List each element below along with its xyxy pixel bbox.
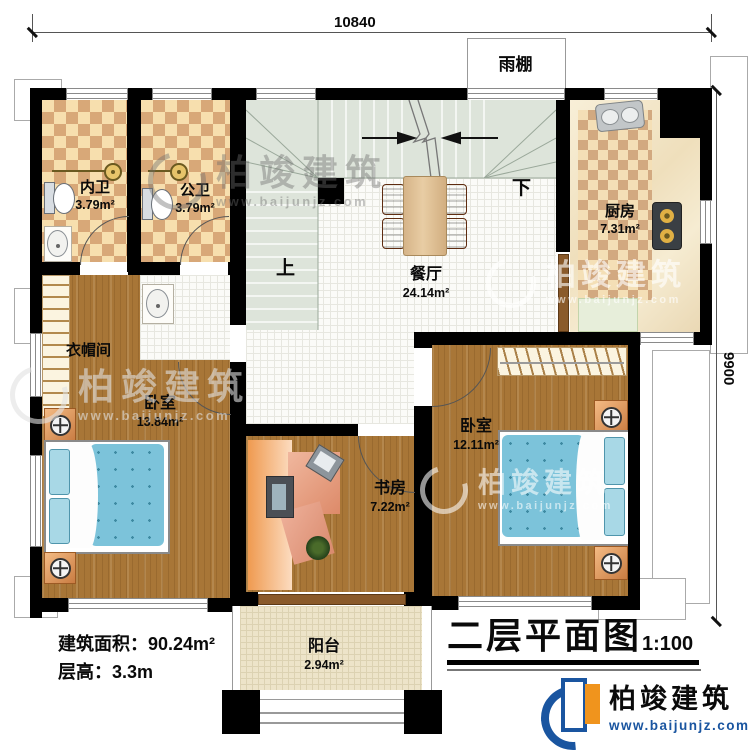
brand-building-icon [561,678,587,732]
window [256,88,316,100]
brand-name: 柏竣建筑 [609,684,733,714]
window [66,88,128,100]
dimension-line-top [32,32,712,33]
plant [306,536,330,560]
floor-height-text: 层高：3.3m [58,662,153,682]
balcony-column [404,690,442,734]
wall [230,275,246,325]
room-area: 2.94m² [304,658,344,672]
room-label-dining: 餐厅 24.14m² [390,266,462,302]
kitchen-mat [578,298,638,332]
wall [628,345,640,596]
dimension-width-label: 10840 [330,15,380,32]
balcony-column [222,690,260,734]
room-area: 3.79m² [75,198,115,212]
dining-chair [382,184,405,215]
stove [652,202,682,250]
wall [556,100,570,252]
room-label-bedroom-left: 卧室 13.84m² [124,395,196,431]
room-area: 24.14m² [403,286,450,300]
room-area: 12.11m² [453,438,499,452]
balcony-sliding-door [258,594,406,605]
nightstand [44,552,76,584]
room-label-public-bath: 公卫 3.79m² [160,183,230,217]
room-name: 阳台 [308,638,340,655]
building-area-text: 建筑面积：90.24m² [58,634,215,654]
rain-canopy-label: 雨棚 [467,55,564,74]
dimension-ext [32,14,33,42]
room-name: 内卫 [80,179,110,196]
bed-right [498,430,630,546]
dining-chair [444,218,467,249]
dimension-line-right [716,90,717,622]
vanity-sink [47,230,68,257]
title-underline-thin [447,669,701,671]
room-label-inner-bath: 内卫 3.79m² [60,180,130,214]
bedroom-right-wardrobe [497,347,627,376]
plan-scale: 1:100 [642,633,693,655]
room-name: 餐厅 [410,266,442,283]
dining-chair [444,184,467,215]
kitchen-door-leaf [558,254,569,332]
room-label-balcony: 阳台 2.94m² [288,638,360,674]
nightstand [594,400,628,434]
stair-wall-stub [318,178,344,204]
shower-head [170,163,188,181]
room-area: 3.79m² [175,201,215,215]
hallway-floor [246,332,414,424]
window [467,88,565,100]
balcony-rail-line [238,712,424,714]
dining-chair [382,218,405,249]
wall [414,332,432,348]
room-label-kitchen: 厨房 7.31m² [585,204,655,238]
room-area: 13.84m² [137,415,184,429]
brand-building-icon [585,684,600,724]
room-name: 厨房 [605,203,635,220]
floor-plan: 雨棚 10840 9900 [0,0,750,751]
room-name: 衣帽间 [66,342,111,359]
dimension-height-label: 9900 [719,352,736,385]
plan-title: 二层平面图 [447,616,642,656]
window [68,598,208,612]
room-name: 公卫 [180,182,210,199]
window [30,333,42,397]
wall [246,424,358,436]
wall [230,362,246,598]
dining-table [403,176,447,256]
room-name: 卧室 [460,418,492,435]
title-underline [447,660,699,665]
room-area: 7.31m² [600,222,640,236]
brand-website: www.baijunjz.com [609,718,750,733]
window [152,88,212,100]
wall [232,592,258,606]
shower-arm [52,170,110,172]
bed-left [44,440,170,554]
nightstand [44,408,76,442]
wall [128,262,180,275]
wall [42,262,80,275]
window [640,332,694,345]
room-name: 卧室 [144,395,176,412]
wall [404,592,432,606]
dimension-ext [711,14,712,42]
roof-outline [652,350,710,604]
stairs-up-label: 上 [276,258,295,279]
wall [660,100,712,138]
room-label-cloakroom: 衣帽间 [66,343,111,360]
room-area: 7.22m² [370,500,410,514]
room-label-study: 书房 7.22m² [354,480,426,516]
balcony-rail-line [238,722,424,724]
window [604,88,658,100]
hall-vanity-sink [146,289,169,318]
kitchen-sink [595,100,646,133]
wall [228,262,246,275]
window [700,200,712,244]
stairs-down-label: 下 [512,178,531,199]
nightstand [594,546,628,580]
brand-logo: 柏竣建筑 www.baijunjz.com [535,672,747,748]
wall [230,100,246,272]
room-name: 书房 [374,480,406,497]
room-label-bedroom-right: 卧室 12.11m² [440,418,512,454]
window [458,596,592,610]
window [30,455,42,547]
computer-monitor [266,476,294,518]
